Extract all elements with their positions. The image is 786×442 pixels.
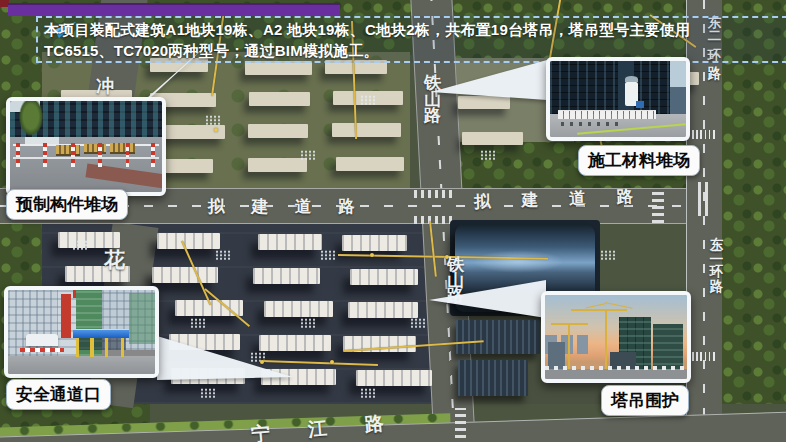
- side-building: [670, 87, 686, 114]
- project-summary-banner: 本项目装配式建筑A1地块19栋、A2 地块19栋、C地块2栋，共布置19台塔吊，…: [36, 16, 786, 63]
- precast-stack-3: [110, 143, 134, 154]
- material-row: [561, 122, 618, 127]
- tower-crane-mast-2: [568, 323, 571, 373]
- canopy-shadow: [76, 338, 126, 351]
- site-fence: [545, 366, 687, 369]
- canopy-leg: [76, 338, 79, 357]
- fence-post: [16, 143, 20, 168]
- building-block: [249, 92, 310, 106]
- label-precast-yard: 预制构件堆场: [6, 189, 128, 220]
- label-materials-yard: 施工材料堆场: [578, 145, 700, 176]
- glass-tower-2: [653, 324, 683, 373]
- fence-post: [126, 143, 130, 168]
- building-block: [458, 96, 510, 109]
- tower-crane-marker: [214, 128, 218, 132]
- window-dot-grid: [205, 115, 221, 125]
- road-label-tieshan-bottom: 铁山路: [444, 242, 467, 287]
- window-dot-grid: [300, 150, 316, 160]
- road-label-ring-mid: 东二环路: [707, 226, 725, 282]
- building-block: [462, 132, 523, 145]
- crosswalk-bottom: [455, 408, 466, 438]
- canopy-leg: [105, 338, 108, 357]
- tree: [19, 101, 43, 136]
- photo-crane-enclosure: [541, 291, 691, 383]
- photo-materials-yard: [546, 57, 690, 141]
- canopy-leg: [121, 338, 124, 357]
- photo-safety-passage: [4, 286, 159, 378]
- crosswalk-south: [414, 216, 452, 224]
- building-block: [456, 320, 540, 354]
- building-block: [342, 235, 407, 251]
- crosswalk-ring: [698, 182, 710, 216]
- facade: [550, 61, 670, 114]
- fence-post: [98, 143, 102, 168]
- building-block: [259, 335, 331, 351]
- window-dot-grid: [600, 250, 616, 260]
- building-block: [261, 369, 336, 385]
- window-dot-grid: [320, 250, 336, 260]
- green-mesh-right: [129, 293, 155, 343]
- tower-crane-marker: [330, 360, 334, 364]
- label-crane-enclosure: 塔吊围护: [601, 385, 689, 416]
- red-hoist: [61, 294, 71, 338]
- yard-ground: [8, 356, 155, 374]
- label-safety-passage: 安全通道口: [6, 379, 111, 410]
- decor-shape: [472, 250, 564, 273]
- white-tent: [26, 334, 58, 347]
- decor-shape: 本项目装配式建筑A1地块19栋、A2 地块19栋、C地块2栋，共布置19台塔吊，…: [44, 21, 690, 40]
- fence-post: [71, 143, 75, 168]
- building-block: [245, 61, 312, 75]
- fence-row: [558, 110, 656, 118]
- building-block: [336, 157, 404, 171]
- ring-road-ticks-2: [692, 352, 716, 361]
- tower-crane-marker: [260, 360, 264, 364]
- slide-canvas: 铁山路 铁山路 拟建道路 拟建道路 东二环路 东二环路 冲 花 宁江路 本项目装…: [0, 0, 786, 442]
- canopy-roof: [73, 329, 129, 338]
- fence-rail-mid: [13, 157, 159, 159]
- site-ground: [545, 369, 687, 379]
- window-dot-grid: [190, 318, 206, 328]
- building-block: [356, 370, 432, 386]
- canopy-leg: [90, 338, 93, 357]
- building-block: [332, 123, 401, 137]
- window-dot-grid: [410, 318, 426, 328]
- slide-accent-bar: [8, 3, 340, 16]
- tower-crane-marker: [370, 253, 374, 257]
- building-block: [458, 360, 528, 396]
- window-dot-grid: [215, 250, 231, 260]
- building-block: [264, 301, 333, 317]
- building-block: [171, 368, 245, 384]
- window-dot-grid: [300, 318, 316, 328]
- banner-line-2: TC6515、TC7020两种型号；通过BIM模拟施工。: [44, 42, 379, 61]
- photo-precast-yard: [6, 97, 166, 196]
- ring-road-ticks-1: [692, 130, 716, 139]
- tower-crane-mast-1: [605, 309, 608, 372]
- sky-sliver: [670, 61, 686, 87]
- fence-post: [43, 143, 47, 168]
- tower-crane-jib-1: [571, 309, 628, 311]
- window-dot-grid: [480, 150, 496, 160]
- road-label-west-partial-top: 冲: [96, 74, 114, 98]
- precast-stack-2: [84, 144, 105, 154]
- building-block: [348, 302, 418, 318]
- road-label-planned-left: 拟建道路: [208, 196, 382, 218]
- building-block: [169, 334, 240, 350]
- building-block: [157, 233, 220, 249]
- window-dot-grid: [200, 388, 216, 398]
- precast-stack-1: [56, 145, 80, 156]
- building-block: [253, 268, 320, 284]
- window-dot-grid: [72, 240, 88, 250]
- window-dot-grid: [360, 388, 376, 398]
- building-block: [350, 269, 418, 285]
- striped-barrier: [20, 348, 64, 352]
- building-block: [152, 267, 218, 283]
- road-label-west-partial-mid: 花: [104, 246, 125, 274]
- building-block: [248, 124, 308, 138]
- blue-hopper: [636, 101, 644, 109]
- road-label-tieshan-top: 铁山路: [421, 60, 444, 108]
- window-dot-grid: [360, 95, 376, 105]
- building-block: [258, 234, 322, 250]
- crosswalk-north: [414, 190, 452, 198]
- fence-post: [151, 143, 155, 168]
- building-block: [248, 158, 307, 172]
